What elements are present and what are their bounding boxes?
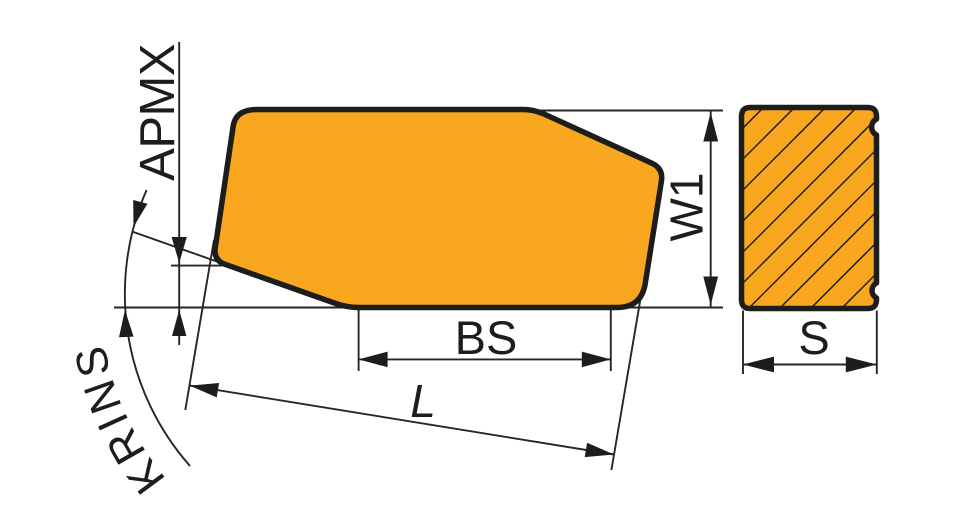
svg-text:L: L <box>410 375 436 427</box>
svg-text:S: S <box>798 311 829 364</box>
svg-text:W1: W1 <box>661 173 713 242</box>
svg-text:BS: BS <box>455 311 518 364</box>
svg-text:APMX: APMX <box>131 44 185 181</box>
